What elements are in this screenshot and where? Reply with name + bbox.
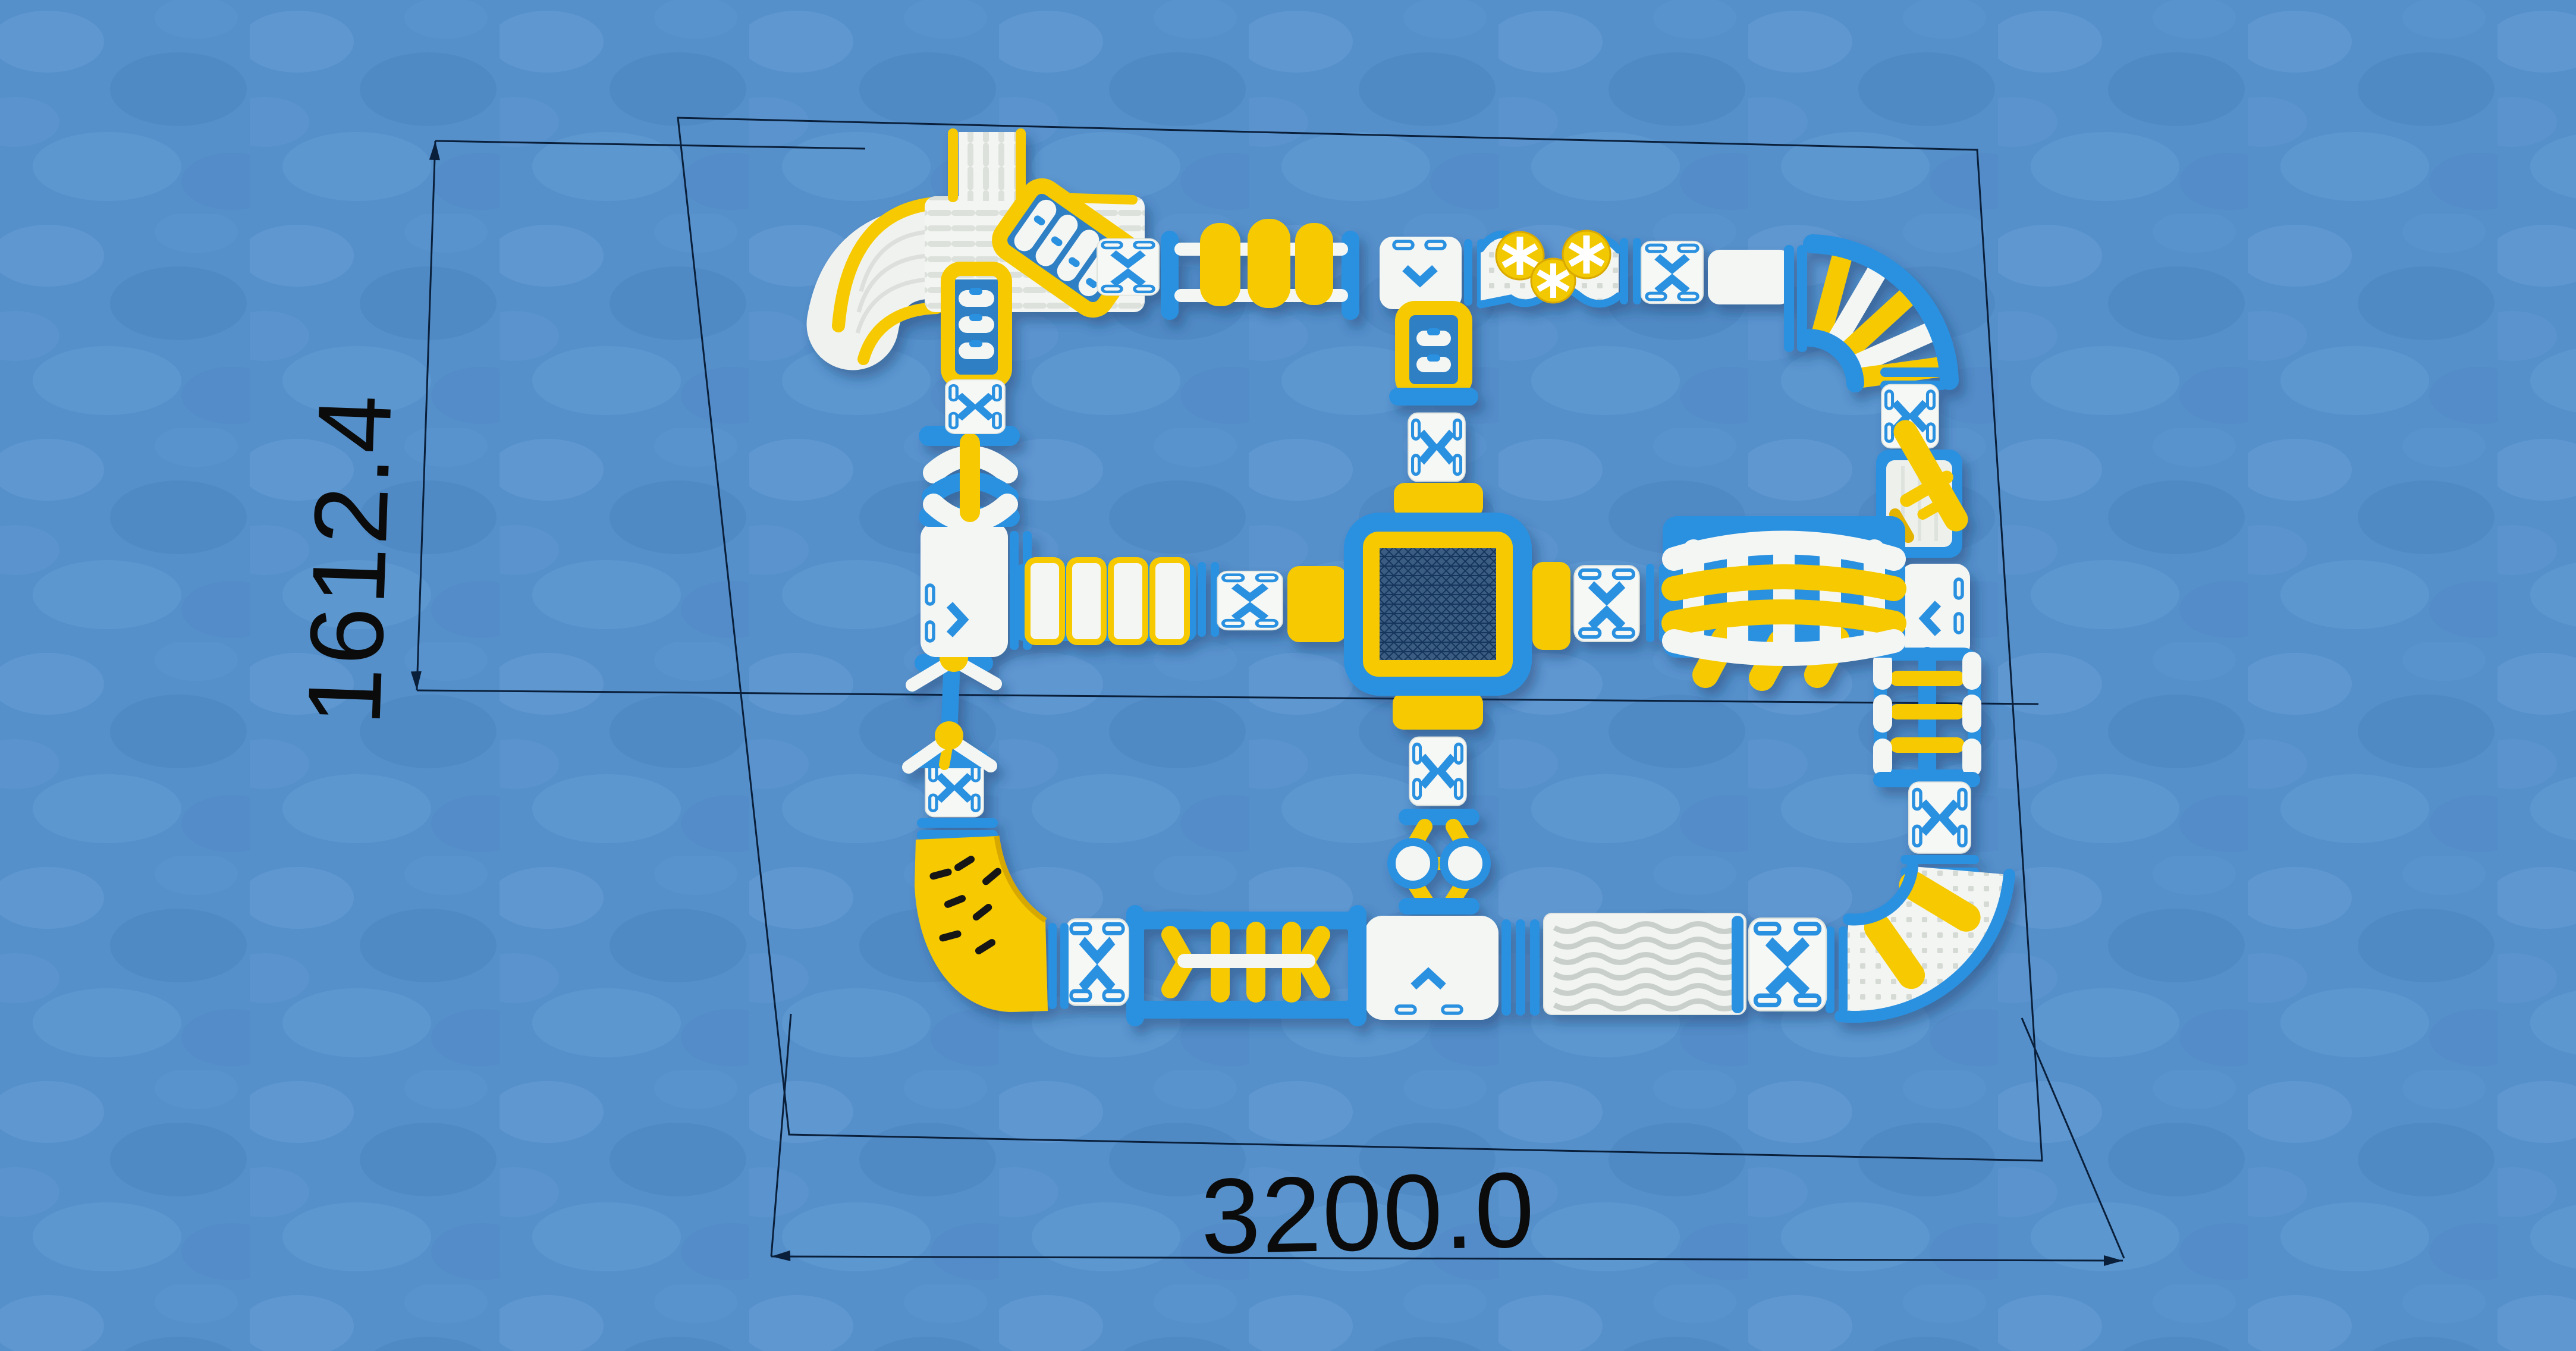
chevron-pad (1066, 919, 1129, 1006)
connector-ring (1501, 919, 1511, 1016)
hurdle-arches (919, 426, 1020, 527)
ripple-mat (1544, 913, 1746, 1014)
render-stage: 1612.4 3200.0 (0, 0, 2576, 1351)
spinner-ball (1563, 231, 1610, 278)
width-dimension-label: 3200.0 (1199, 1150, 1537, 1277)
connector-ring (1530, 919, 1540, 1016)
connector-ring (1620, 238, 1628, 304)
hub-ladder (943, 269, 1010, 384)
chevron-pad (1749, 918, 1826, 1010)
chevron-pad (1574, 565, 1639, 642)
climbing-wall (1663, 516, 1905, 678)
connector-ring (1464, 239, 1472, 306)
chevron-pad (1097, 238, 1159, 295)
chevron-pad (1641, 241, 1703, 303)
chevron-pad (1217, 571, 1282, 630)
water-park-render: 1612.4 3200.0 (0, 0, 2576, 1351)
chevron-pad (945, 380, 1005, 433)
float-pad (1708, 250, 1791, 304)
chevron-pad (1409, 737, 1466, 806)
chevron-pad (1909, 782, 1971, 853)
connector-ring (1646, 564, 1654, 642)
chevron-pad (1408, 413, 1465, 482)
saddle-balls (1391, 809, 1487, 915)
stepping-pads-bridge (1014, 560, 1219, 642)
east-platform (1900, 564, 1970, 659)
monkey-bar-frame (1873, 647, 1981, 787)
connector-ring (1633, 238, 1641, 304)
height-dimension-label: 1612.4 (286, 391, 413, 727)
connector-ring (1516, 919, 1525, 1016)
south-platform (1365, 916, 1499, 1020)
